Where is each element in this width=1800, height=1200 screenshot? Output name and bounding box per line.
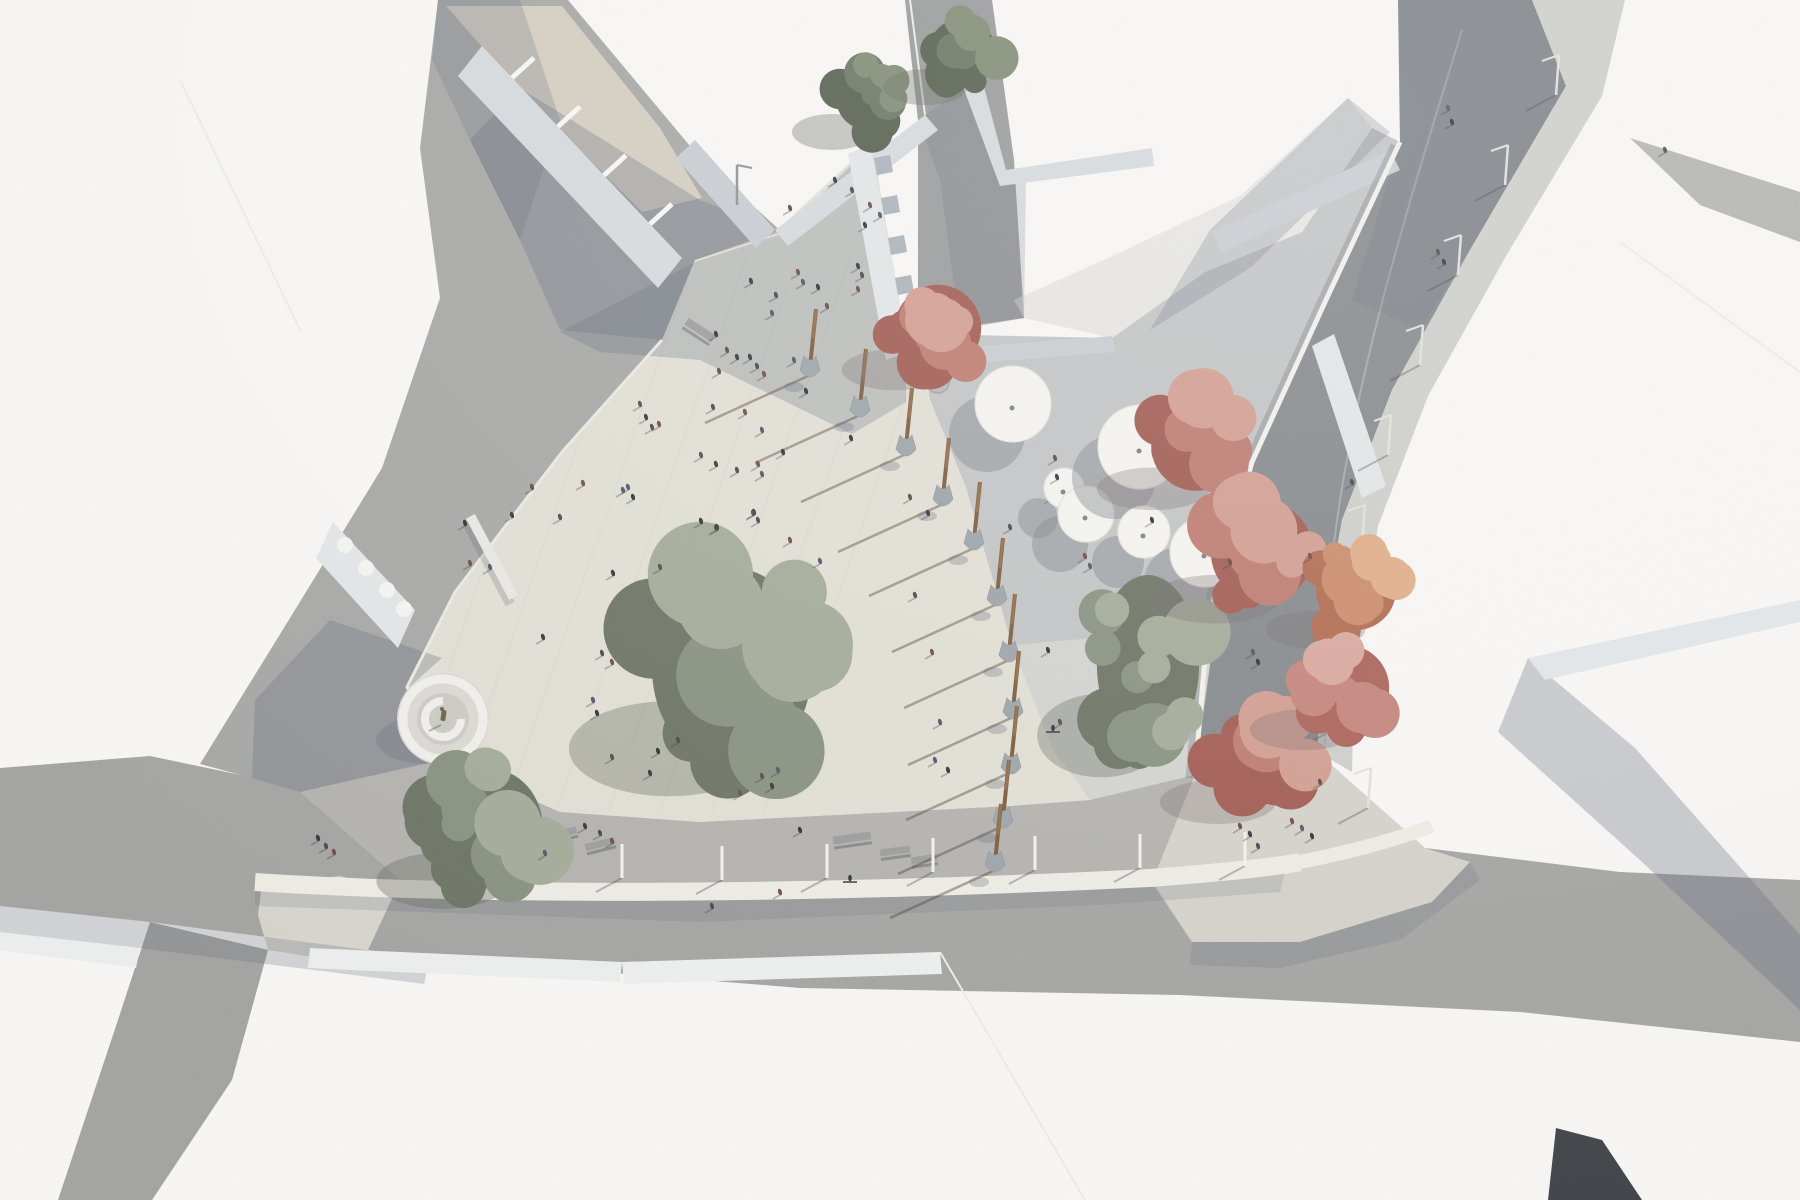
- render-canvas: [0, 0, 1800, 1200]
- plaza-aerial-render: [0, 0, 1800, 1200]
- render-grain: [0, 0, 1800, 1200]
